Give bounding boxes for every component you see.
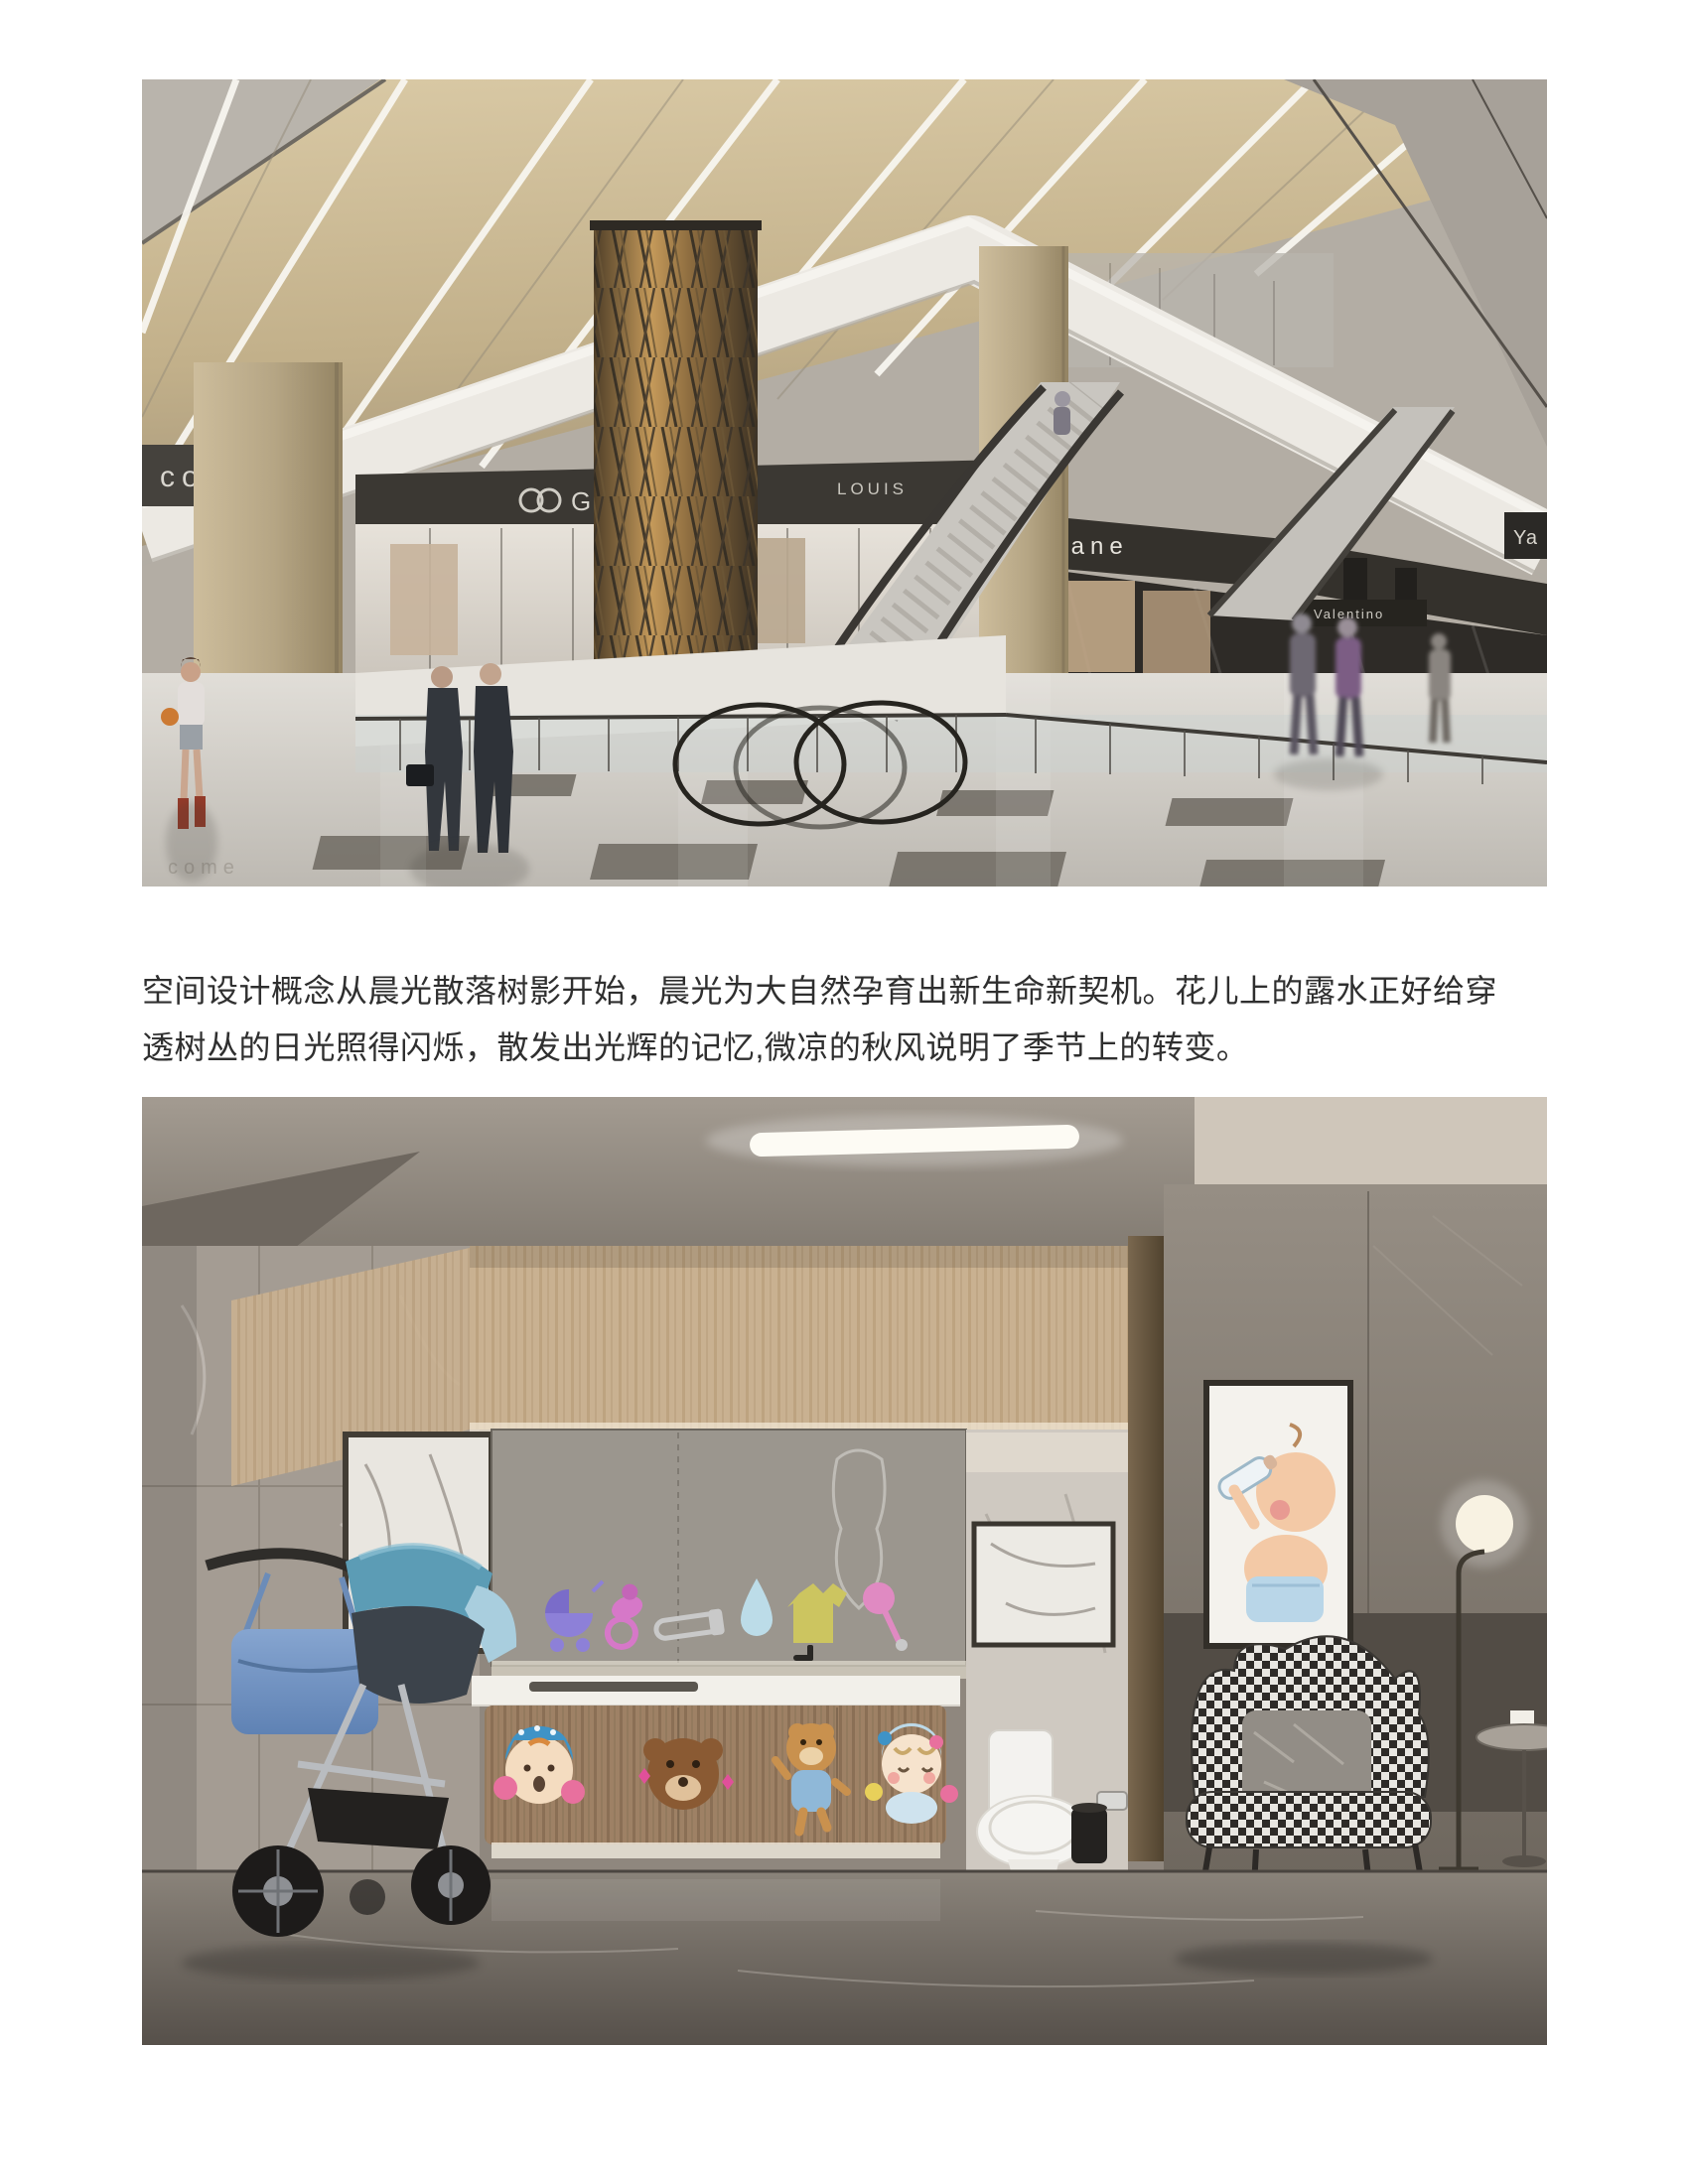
mall-rendering-figure: come GUCCI LOUIS Chane Valentino [142, 79, 1547, 887]
marble-wall-art [974, 1524, 1113, 1645]
baby-diaper [1246, 1576, 1324, 1622]
mall-rendering: come GUCCI LOUIS Chane Valentino [142, 79, 1547, 887]
stroller-basket [308, 1788, 449, 1849]
window-poster [1143, 591, 1210, 674]
changing-counter [472, 1645, 966, 1858]
baby-sticker-panel [492, 1430, 966, 1666]
baby-room-rendering-figure [142, 1097, 1547, 2045]
bronze-pilaster [1128, 1236, 1164, 1861]
trash-bin [1071, 1803, 1107, 1863]
stroller-seat [352, 1606, 485, 1704]
louis-sign-text: LOUIS [837, 479, 908, 498]
baby-poster [1206, 1383, 1350, 1646]
ceiling-light-strip [706, 1115, 1123, 1166]
tan-column-left [194, 362, 343, 720]
baby-room-rendering [142, 1097, 1547, 2045]
body-paragraph: 空间设计概念从晨光散落树影开始，晨光为大自然孕育出新生命新契机。花儿上的露水正好… [142, 963, 1524, 1076]
window-poster [390, 544, 458, 655]
briefcase [406, 764, 434, 786]
corner-sign-text: Ya [1513, 527, 1538, 549]
right-bulkhead [1195, 1097, 1547, 1184]
escalator-rider [1054, 391, 1070, 435]
shopping-bag [161, 708, 179, 726]
sink-recess [529, 1682, 698, 1692]
article-page: come GUCCI LOUIS Chane Valentino [0, 0, 1688, 2184]
